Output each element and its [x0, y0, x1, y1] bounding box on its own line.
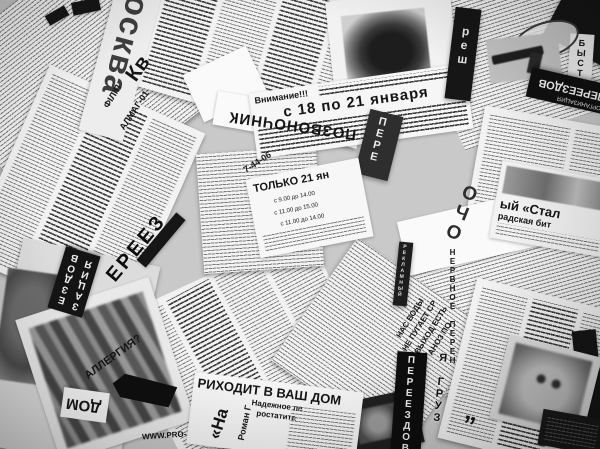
- label-na-quote: «На: [206, 406, 231, 441]
- reversed-text: [543, 415, 599, 449]
- label-pereezdov-big: ПЕРЕЕЗДОВ: [399, 355, 416, 449]
- label-reklamny: РЕКЛАМНЫЙ: [397, 244, 408, 298]
- label-resh: реш: [456, 23, 473, 66]
- newspaper-collage: осква Кв ФІЛІП АЛМАГ-01 Внимание!!! с 18…: [0, 0, 600, 449]
- headline-dom: ДОМ: [65, 395, 102, 415]
- dom-chip: ДОМ: [60, 387, 110, 423]
- label-pere: ПЕРЕ: [367, 115, 389, 164]
- schedule-time-1: с 9.00 до 14.00: [274, 191, 316, 205]
- label-roman: Роман Г: [237, 404, 253, 441]
- body-text: [286, 406, 356, 449]
